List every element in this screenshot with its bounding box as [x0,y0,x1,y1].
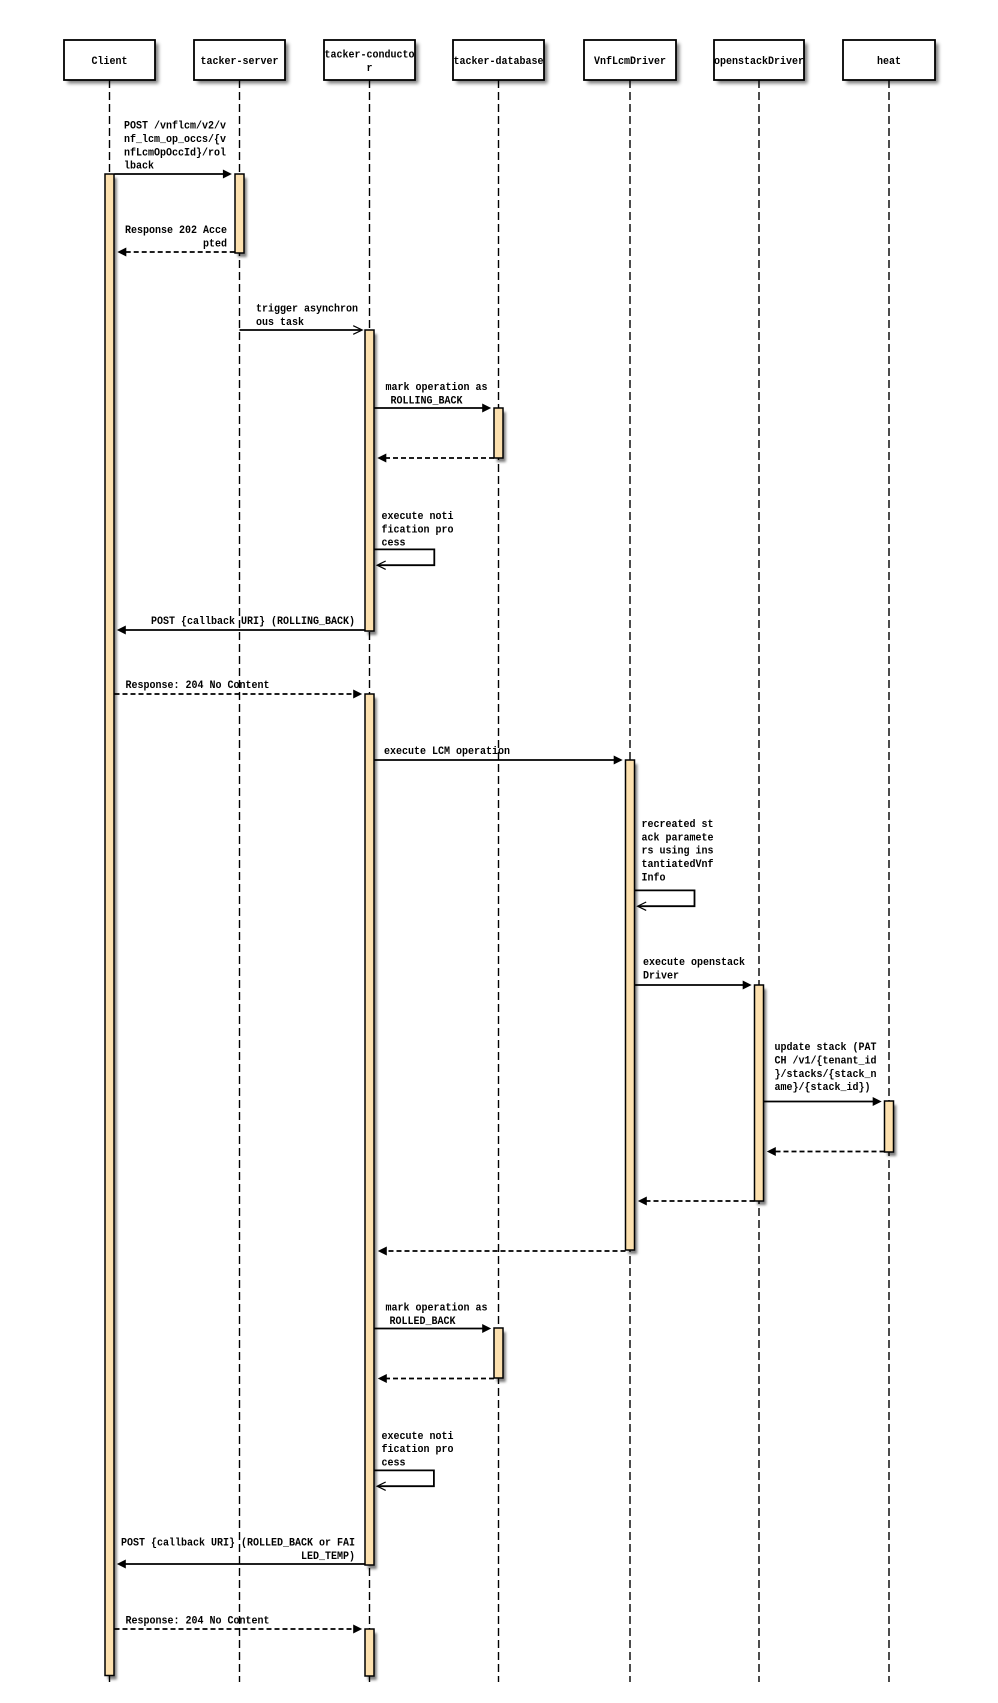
svg-text:pted: pted [203,238,227,250]
svg-text:mark operation as: mark operation as [386,1303,488,1315]
svg-text:mark operation as: mark operation as [386,382,488,394]
svg-text:LED_TEMP): LED_TEMP) [301,1551,355,1563]
svg-text:tacker-database: tacker-database [454,56,544,68]
svg-text:nf_lcm_op_occs/{v: nf_lcm_op_occs/{v [124,134,226,146]
svg-text:fication pro: fication pro [382,524,454,536]
svg-text:tantiatedVnf: tantiatedVnf [642,859,714,871]
svg-text:Info: Info [642,872,666,884]
svg-text:POST {callback URI} (ROLLED_BA: POST {callback URI} (ROLLED_BACK or FAI [121,1538,355,1550]
svg-text:Client: Client [92,56,128,68]
svg-text:POST {callback URI} (ROLLING_B: POST {callback URI} (ROLLING_BACK) [151,616,355,628]
svg-text:tacker-server: tacker-server [201,56,279,68]
svg-text:lback: lback [124,161,154,173]
svg-text:update stack (PAT: update stack (PAT [775,1042,877,1054]
svg-text:Response: 204 No Content: Response: 204 No Content [126,1616,270,1628]
svg-text:execute noti: execute noti [382,511,454,523]
svg-text:tacker-conducto: tacker-conducto [325,50,415,62]
svg-text:trigger asynchron: trigger asynchron [256,304,358,316]
svg-text:rs using ins: rs using ins [642,846,714,858]
svg-text:cess: cess [382,538,406,550]
svg-text:recreated st: recreated st [642,819,714,831]
svg-text:heat: heat [877,56,901,68]
svg-text:Response: 204 No Content: Response: 204 No Content [126,680,270,692]
svg-text:execute openstack: execute openstack [643,957,745,969]
svg-text:POST /vnflcm/v2/v: POST /vnflcm/v2/v [124,121,226,133]
svg-text:execute noti: execute noti [382,1431,454,1443]
svg-text:VnfLcmDriver: VnfLcmDriver [594,56,666,68]
svg-text:nfLcmOpOccId}/rol: nfLcmOpOccId}/rol [124,147,226,159]
svg-text:ous task: ous task [256,317,304,329]
svg-text:ack paramete: ack paramete [642,832,714,844]
svg-text:cess: cess [382,1457,406,1469]
svg-text:Response 202 Acce: Response 202 Acce [125,225,227,237]
svg-text:CH /v1/{tenant_id: CH /v1/{tenant_id [775,1056,877,1068]
svg-text:openstackDriver: openstackDriver [714,56,804,68]
svg-text:ROLLING_BACK: ROLLING_BACK [391,396,463,408]
svg-text:ROLLED_BACK: ROLLED_BACK [390,1316,456,1328]
svg-text:Driver: Driver [643,970,679,982]
svg-text:}/stacks/{stack_n: }/stacks/{stack_n [775,1069,877,1081]
svg-text:fication pro: fication pro [382,1444,454,1456]
svg-text:ame}/{stack_id}): ame}/{stack_id}) [775,1082,871,1094]
svg-text:r: r [367,63,373,75]
svg-text:execute LCM operation: execute LCM operation [384,746,510,758]
